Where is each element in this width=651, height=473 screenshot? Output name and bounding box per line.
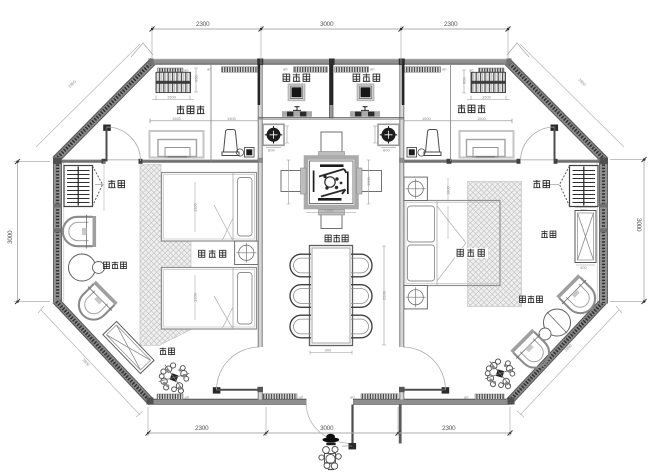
- svg-text:a0: a0: [299, 395, 304, 400]
- svg-text:2300: 2300: [195, 425, 209, 432]
- svg-text:900: 900: [325, 348, 332, 353]
- svg-text:600: 600: [383, 148, 390, 153]
- svg-text:1000: 1000: [366, 176, 371, 186]
- svg-text:a0: a0: [185, 395, 190, 400]
- svg-text:2200: 2200: [382, 290, 387, 300]
- svg-text:900: 900: [462, 77, 467, 84]
- svg-text:1200: 1200: [193, 202, 198, 212]
- svg-text:1500: 1500: [172, 116, 182, 121]
- svg-text:3000: 3000: [7, 230, 14, 244]
- svg-text:a0: a0: [469, 68, 474, 73]
- svg-text:1000: 1000: [325, 208, 335, 213]
- svg-text:3000: 3000: [320, 425, 334, 432]
- svg-text:2300: 2300: [196, 21, 210, 28]
- svg-text:1500: 1500: [167, 95, 177, 100]
- svg-text:1800: 1800: [446, 185, 451, 195]
- svg-text:2300: 2300: [442, 425, 456, 432]
- svg-text:400: 400: [580, 265, 587, 270]
- svg-text:600: 600: [268, 148, 275, 153]
- svg-text:1500: 1500: [482, 95, 492, 100]
- svg-text:2300: 2300: [444, 21, 458, 28]
- svg-text:a0: a0: [464, 395, 469, 400]
- svg-text:900: 900: [194, 75, 199, 82]
- svg-text:1500: 1500: [422, 116, 432, 121]
- svg-text:3000: 3000: [320, 21, 334, 28]
- svg-text:a0: a0: [370, 67, 375, 72]
- svg-text:a0: a0: [350, 395, 355, 400]
- svg-text:a0: a0: [283, 67, 288, 72]
- svg-text:1200: 1200: [193, 292, 198, 302]
- svg-text:a0: a0: [442, 67, 447, 72]
- svg-text:3000: 3000: [635, 218, 642, 232]
- svg-text:a0: a0: [207, 67, 212, 72]
- svg-text:1500: 1500: [477, 116, 487, 121]
- svg-text:1500: 1500: [227, 116, 237, 121]
- svg-text:a0: a0: [184, 68, 189, 73]
